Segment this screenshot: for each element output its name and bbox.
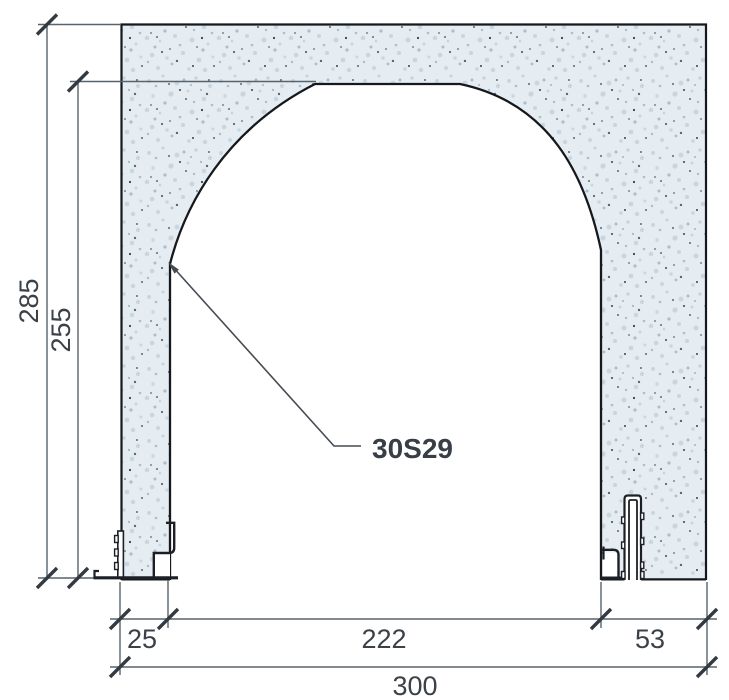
left-snap-strip-nubs: [115, 536, 119, 570]
dim-total-width: 300: [392, 671, 437, 700]
technical-drawing-canvas: 30S29 285 255 25 222 53 300: [0, 0, 729, 700]
dim-opening-width: 222: [361, 624, 406, 654]
dim-right-jamb-width: 53: [635, 624, 665, 654]
left-rebate-cut: [153, 554, 171, 577]
leader-annotation: 30S29: [168, 262, 453, 464]
masonry-section: [122, 25, 707, 581]
dim-left-jamb-width: 25: [127, 624, 157, 654]
arch-opening-outline: [170, 84, 601, 580]
right-channel-fill: [625, 496, 642, 582]
arch-section-drawing: 30S29 285 255 25 222 53 300: [0, 0, 729, 700]
profile-label: 30S29: [372, 433, 453, 464]
dimension-labels: 285 255 25 222 53 300: [14, 278, 665, 700]
dim-total-height: 285: [14, 278, 44, 323]
right-rebate-cut: [603, 553, 618, 577]
leader-line: [172, 266, 361, 446]
dim-opening-height: 255: [46, 307, 76, 352]
